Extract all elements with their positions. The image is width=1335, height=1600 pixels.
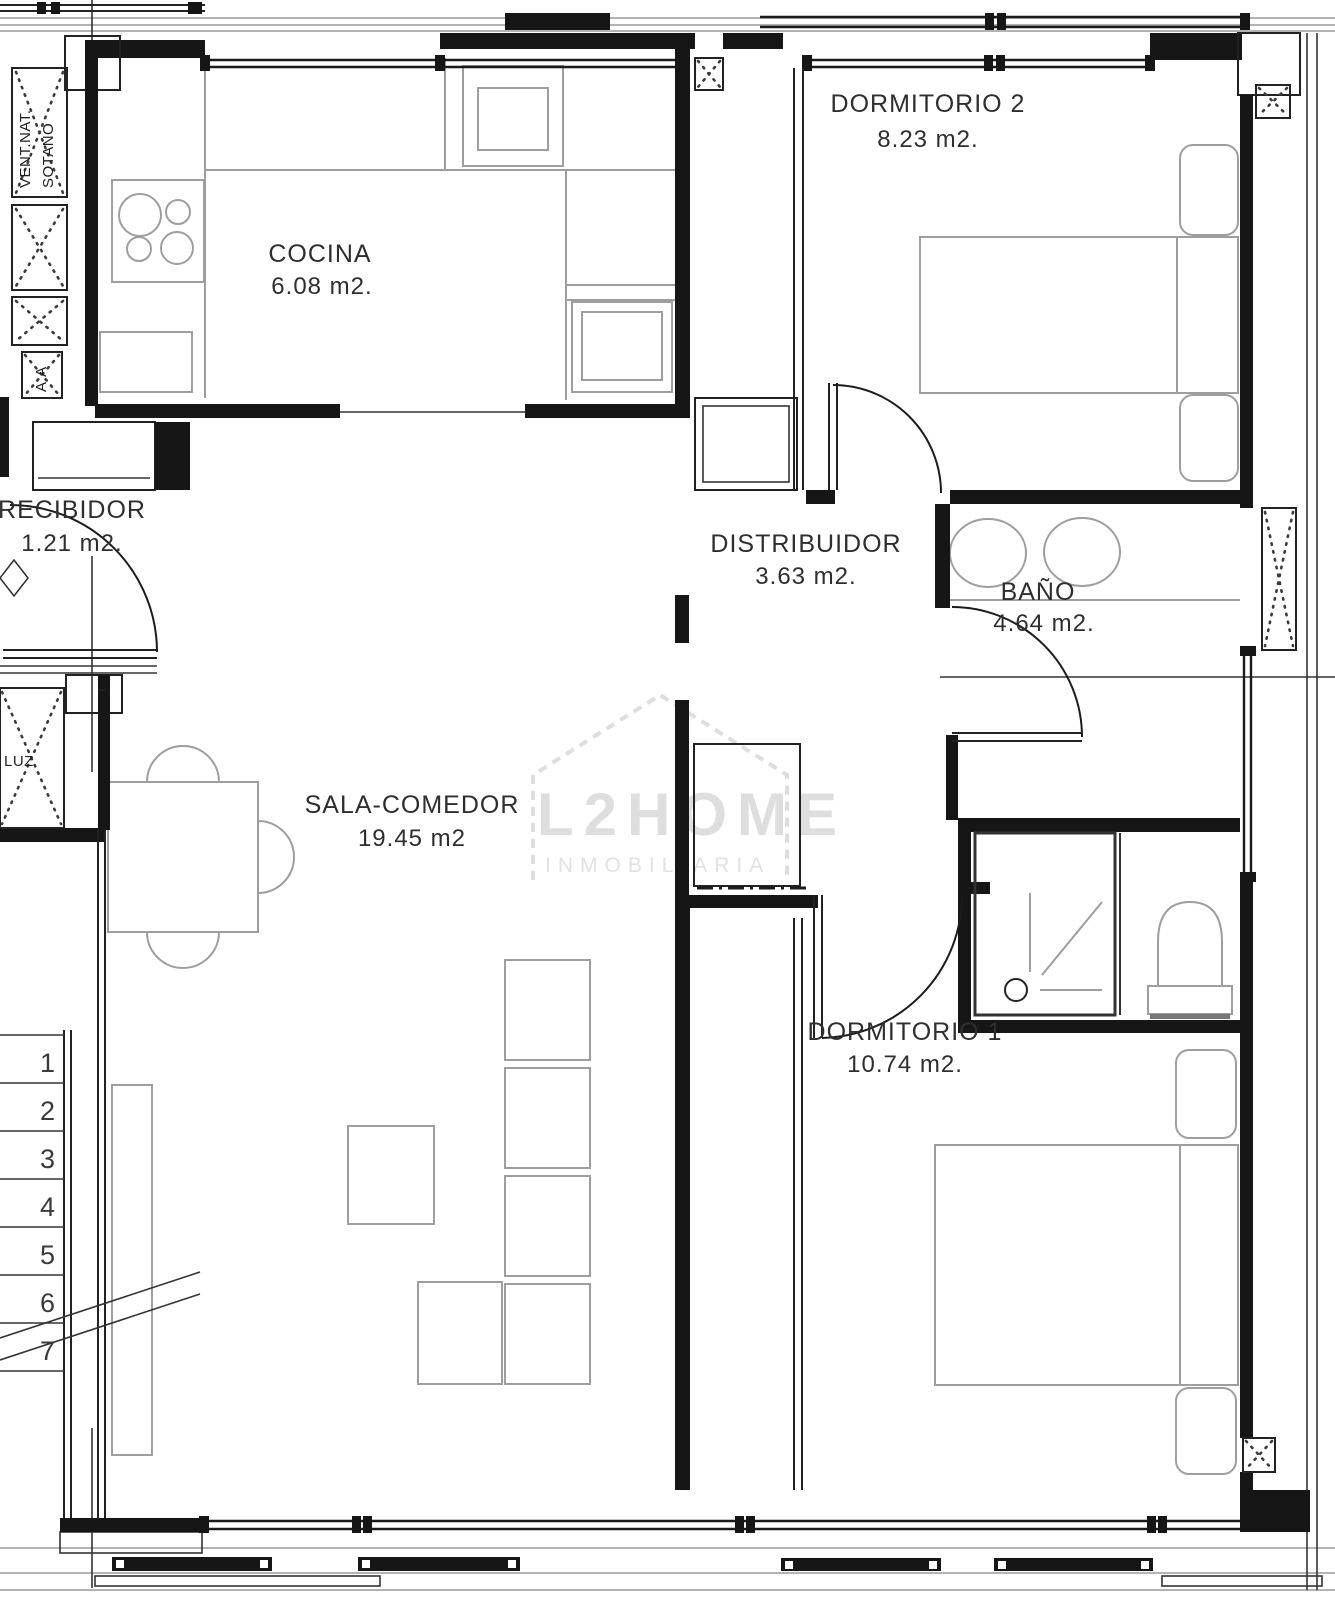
sofa-module [505, 1176, 590, 1276]
area-recibidor: 1.21 m2. [21, 530, 122, 557]
washbasin-icon [1044, 518, 1120, 586]
label-dormitorio2: DORMITORIO 2 [831, 90, 1026, 118]
dormitorio1-door [814, 895, 962, 1038]
hatched-pillar [695, 58, 723, 90]
label-distribuidor: DISTRIBUIDOR [710, 530, 901, 558]
stairs: 1 2 3 4 5 6 7 [0, 1035, 200, 1371]
pillow-icon [1176, 1050, 1236, 1138]
dining-set [108, 746, 294, 968]
area-dormitorio2: 8.23 m2. [877, 126, 978, 153]
watermark-subtitle: INMOBILIARIA [545, 854, 770, 877]
stair-number: 3 [40, 1144, 55, 1174]
area-dormitorio1: 10.74 m2. [847, 1051, 963, 1078]
bed-icon [920, 237, 1238, 393]
pillow-icon [1180, 145, 1238, 235]
pillow-icon [1180, 395, 1238, 481]
entry-arrow-icon [0, 560, 28, 596]
sofa-module [505, 1284, 590, 1384]
chair-icon [258, 821, 294, 893]
area-distribuidor: 3.63 m2. [755, 563, 856, 590]
sofa-module [418, 1282, 502, 1384]
window-sill-bars [112, 1557, 1153, 1571]
stair-number: 1 [40, 1048, 55, 1078]
area-sala: 19.45 m2 [358, 825, 466, 852]
pillow-icon [1176, 1388, 1236, 1474]
floor-plan: L2HOME INMOBILIARIA [0, 0, 1335, 1600]
stair-break-line [0, 1294, 200, 1360]
stove-icon [112, 180, 204, 282]
bed-dormitorio1 [935, 1050, 1238, 1474]
bed-icon [935, 1145, 1238, 1385]
area-bano: 4.64 m2. [993, 610, 1094, 637]
washbasin-icon [950, 519, 1026, 587]
chair-icon [147, 746, 219, 782]
stair-number: 5 [40, 1240, 55, 1270]
label-bano: BAÑO [1001, 577, 1076, 606]
shower-icon [1005, 893, 1102, 1001]
stair-number: 7 [40, 1336, 55, 1366]
kitchen-appliance [100, 332, 192, 392]
label-dormitorio1: DORMITORIO 1 [808, 1018, 1003, 1046]
sofa-module [505, 1068, 590, 1168]
dormitorio2-door [829, 383, 941, 493]
area-cocina: 6.08 m2. [271, 273, 372, 300]
dining-table-icon [108, 782, 258, 932]
hatched-duct [1262, 508, 1296, 650]
floor-plan-drawing: L2HOME INMOBILIARIA [0, 0, 1335, 1600]
hatched-pillar [1256, 85, 1290, 118]
label-cocina: COCINA [268, 240, 371, 268]
bathroom-fixtures [950, 518, 1240, 1019]
toilet-icon [1148, 902, 1232, 1019]
sala-furniture [112, 960, 590, 1455]
stair-number: 2 [40, 1096, 55, 1126]
label-luz: LUZ [4, 753, 34, 770]
sofa-module [505, 960, 590, 1060]
label-recibidor: RECIBIDOR [0, 496, 146, 524]
coffee-table-icon [348, 1126, 434, 1224]
kitchen-fixtures [100, 58, 675, 400]
hatched-pillar [1243, 1438, 1275, 1472]
stair-break-line [0, 1272, 200, 1338]
chair-icon [147, 932, 219, 968]
sideboard-icon [112, 1085, 152, 1455]
label-vent-nat: VENT.NAT. [17, 110, 34, 188]
stair-number: 6 [40, 1288, 55, 1318]
label-sotano: SOTANO [40, 123, 57, 188]
stair-number: 4 [40, 1192, 55, 1222]
bed-dormitorio2 [920, 145, 1238, 481]
label-sala: SALA-COMEDOR [305, 791, 520, 819]
label-aa: A.A [33, 366, 50, 392]
